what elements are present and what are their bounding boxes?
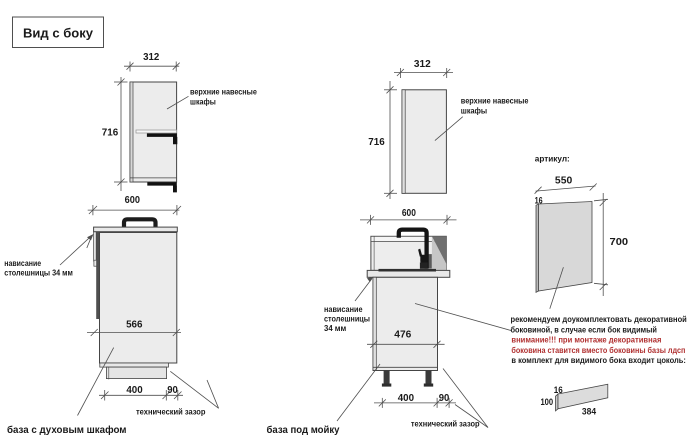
svg-text:боковина ставится вместо боков: боковина ставится вместо боковины базы л… (511, 346, 685, 355)
svg-text:в комплект для видимого бока в: в комплект для видимого бока входит цоко… (511, 355, 686, 365)
svg-text:технический зазор: технический зазор (411, 419, 480, 429)
svg-text:476: 476 (394, 329, 411, 340)
svg-text:566: 566 (126, 320, 143, 331)
svg-text:34 мм: 34 мм (324, 323, 346, 333)
svg-text:90: 90 (167, 385, 178, 396)
svg-text:база под мойку: база под мойку (267, 424, 340, 436)
svg-text:Вид с боку: Вид с боку (23, 26, 94, 41)
svg-text:нависание: нависание (4, 258, 41, 268)
svg-text:100: 100 (540, 397, 553, 408)
svg-text:шкафы: шкафы (190, 97, 216, 107)
svg-text:400: 400 (398, 393, 415, 404)
svg-text:верхние навесные: верхние навесные (190, 87, 257, 97)
svg-text:700: 700 (610, 237, 629, 248)
svg-text:600: 600 (125, 195, 141, 206)
svg-text:рекомендуем доукомплектовать д: рекомендуем доукомплектовать декоративно… (511, 314, 687, 324)
svg-text:внимание!!! при монтаже декора: внимание!!! при монтаже декоративная (511, 336, 661, 345)
svg-text:нависание: нависание (324, 304, 363, 314)
svg-text:312: 312 (143, 52, 160, 63)
svg-text:16: 16 (554, 385, 563, 395)
svg-text:артикул:: артикул: (535, 154, 570, 164)
svg-text:716: 716 (368, 137, 385, 148)
svg-text:550: 550 (555, 175, 573, 186)
svg-text:шкафы: шкафы (461, 105, 487, 115)
svg-text:400: 400 (126, 385, 143, 396)
svg-text:312: 312 (414, 59, 431, 70)
svg-text:716: 716 (102, 127, 119, 138)
svg-text:верхние навесные: верхние навесные (461, 95, 529, 105)
svg-text:90: 90 (439, 393, 450, 404)
svg-text:384: 384 (582, 407, 597, 418)
svg-text:база с духовым шкафом: база с духовым шкафом (7, 424, 127, 436)
svg-text:600: 600 (402, 208, 416, 219)
svg-text:боковиной, в случае если бок в: боковиной, в случае если бок видимый (511, 324, 657, 334)
svg-text:столешницы 34 мм: столешницы 34 мм (4, 268, 73, 278)
svg-text:технический зазор: технический зазор (136, 407, 206, 417)
